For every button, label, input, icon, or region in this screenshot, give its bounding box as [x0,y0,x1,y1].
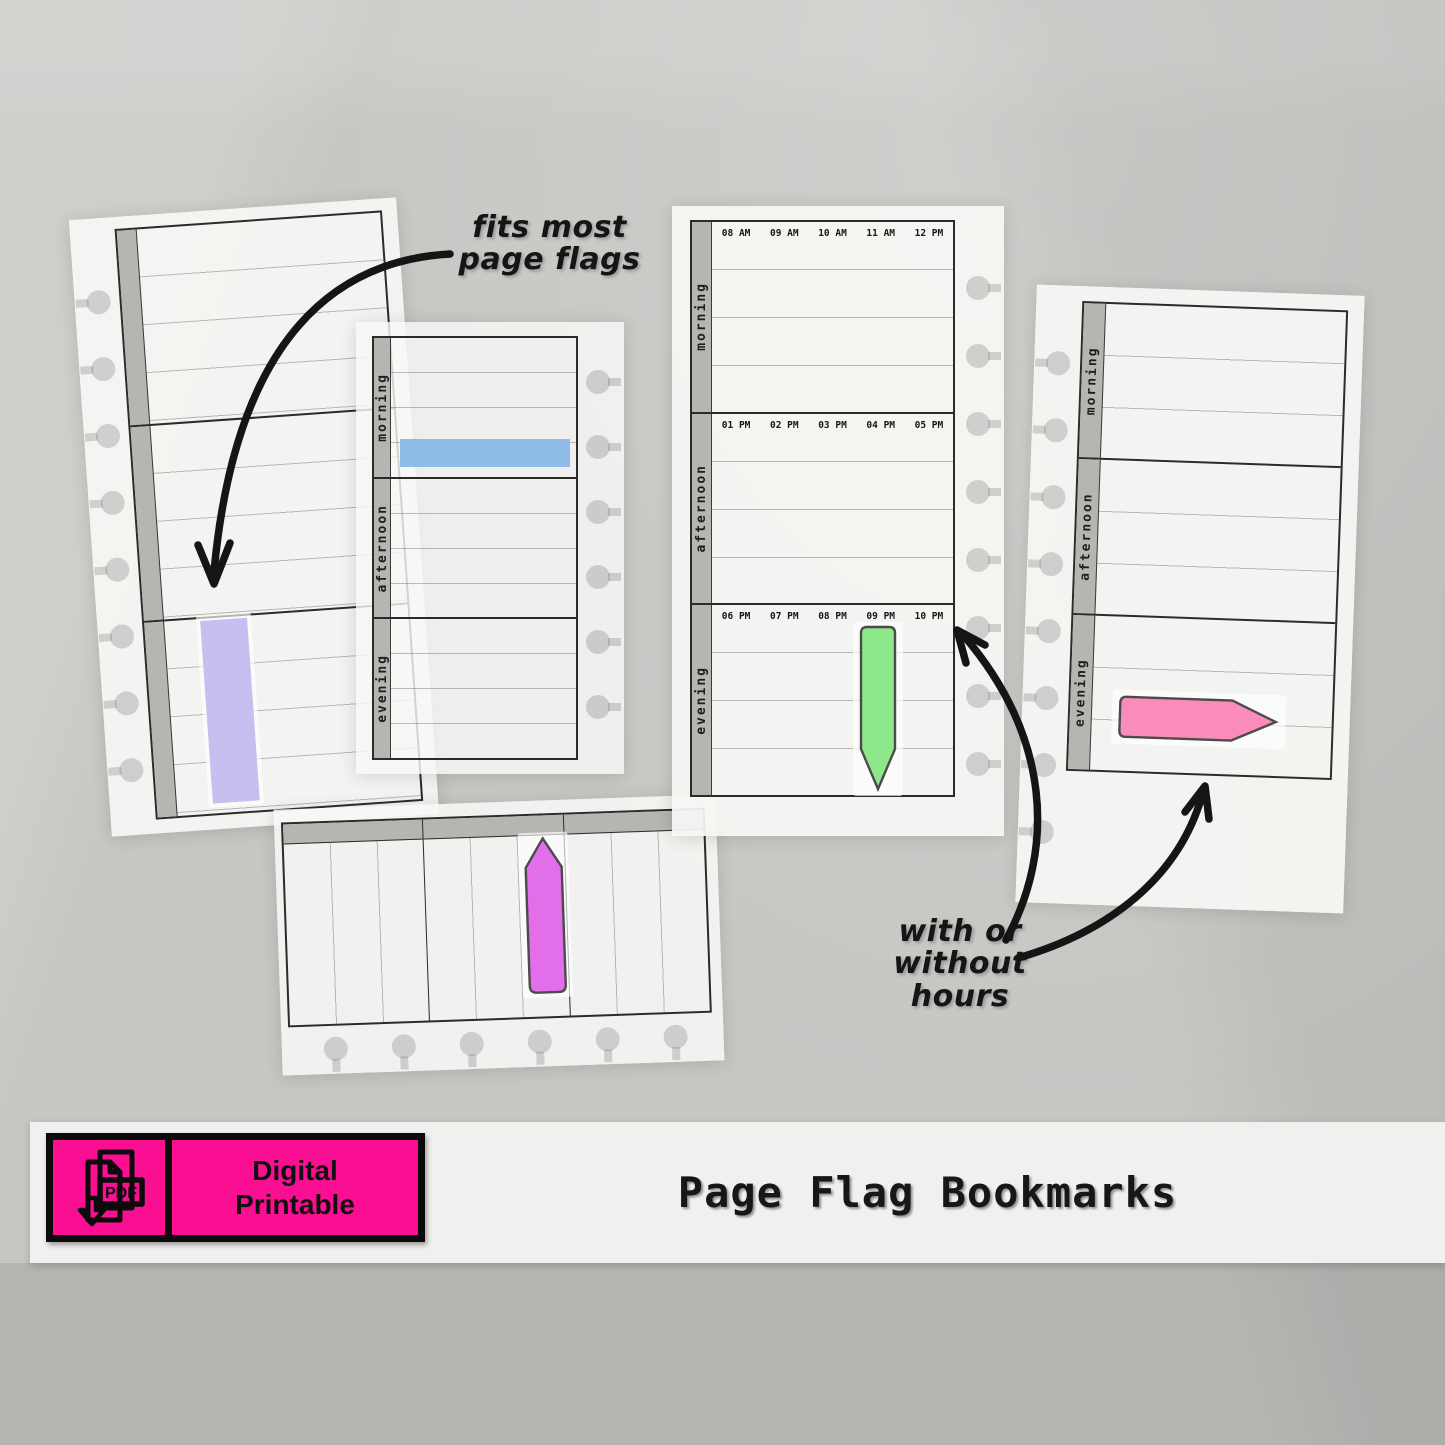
binder-disc-hole [1039,552,1064,577]
svg-text:PDF: PDF [105,1185,137,1202]
binder-disc-hole [105,557,131,583]
section-label-morning: morning [375,373,390,442]
digital-printable-badge: PDF Digital Printable [46,1133,425,1242]
binder-disc-hole [114,691,140,717]
binder-disc-hole [663,1024,688,1049]
hour-header-row: 08 AM 09 AM 10 AM 11 AM 12 PM [712,222,953,246]
binder-disc-hole [586,435,610,459]
binder-disc-hole [1036,619,1061,644]
binder-disc-hole [1029,820,1054,845]
binder-disc-hole [586,630,610,654]
hour-label: 06 PM [712,605,760,629]
planner-page-lined-overlay: morning afternoon evening [356,322,624,774]
binder-disc-hole [109,624,135,650]
binder-disc-hole [966,412,990,436]
binder-disc-hole [595,1027,620,1052]
annotation-fits-most-page-flags: fits most page flags [452,212,647,277]
three-column-table [281,808,712,1028]
binder-disc-hole [966,276,990,300]
hour-label: 07 PM [760,605,808,629]
binder-disc-hole [966,616,990,640]
page-flag-violet [522,835,570,996]
binder-disc-hole [966,480,990,504]
section-label-morning: morning [1083,346,1100,415]
section-label-evening: evening [1072,658,1089,727]
product-banner: PDF Digital Printable Page Flag Bookmark… [30,1122,1445,1263]
section-label-afternoon: afternoon [1078,492,1096,581]
hour-label: 05 PM [905,414,953,438]
binder-disc-hole [966,684,990,708]
hour-label: 02 PM [760,414,808,438]
hour-label: 09 AM [760,222,808,246]
binder-disc-hole [586,565,610,589]
binder-disc-hole [1046,351,1071,376]
background-lower-shade [0,1263,1445,1445]
hour-label: 04 PM [857,414,905,438]
hour-label: 10 AM [808,222,856,246]
binder-disc-hole [586,370,610,394]
section-label-morning: morning [694,282,709,351]
binder-disc-hole [586,500,610,524]
product-title: Page Flag Bookmarks [410,1122,1445,1263]
binder-disc-hole [1043,418,1068,443]
hour-label: 08 PM [808,605,856,629]
hour-label: 11 AM [857,222,905,246]
page-flag-green [858,625,898,793]
binder-disc-hole [966,548,990,572]
binder-disc-hole [86,290,112,316]
hour-header-row: 01 PM 02 PM 03 PM 04 PM 05 PM [712,414,953,438]
page-flag-blue [400,439,570,467]
hourly-schedule-table: morning 08 AM 09 AM 10 AM 11 AM 12 PM af… [690,220,955,797]
planner-page-grid-right: morning afternoon evening [1015,284,1364,913]
section-label-afternoon: afternoon [694,464,709,552]
planner-page-columns-bottom [273,794,724,1075]
section-label-evening: evening [375,654,390,723]
binder-disc-hole [100,490,126,516]
section-label-evening: evening [694,666,709,735]
binder-disc-hole [391,1034,416,1059]
binder-disc-hole [323,1036,348,1061]
badge-text: Digital Printable [172,1140,418,1235]
annotation-with-or-without-hours: with or without hours [840,916,1080,1013]
binder-disc-hole [966,752,990,776]
binder-disc-hole [1032,753,1057,778]
binder-disc-hole [586,695,610,719]
section-label-afternoon: afternoon [375,504,390,592]
planner-page-hours: morning 08 AM 09 AM 10 AM 11 AM 12 PM af… [672,206,1004,836]
binder-disc-hole [459,1032,484,1057]
binder-disc-hole [119,757,145,783]
hour-label: 12 PM [905,222,953,246]
hour-header-row: 06 PM 07 PM 08 PM 09 PM 10 PM [712,605,953,629]
binder-disc-hole [527,1029,552,1054]
binder-disc-hole [91,356,117,382]
binder-disc-hole [966,344,990,368]
hour-label: 03 PM [808,414,856,438]
hour-label: 01 PM [712,414,760,438]
hour-label: 08 AM [712,222,760,246]
pdf-download-icon: PDF [53,1140,172,1235]
daily-lined-table: morning afternoon evening [372,336,578,760]
binder-disc-hole [1034,686,1059,711]
hour-label: 10 PM [905,605,953,629]
binder-disc-hole [95,423,121,449]
binder-disc-hole [1041,485,1066,510]
page-flag-pink [1115,693,1281,745]
